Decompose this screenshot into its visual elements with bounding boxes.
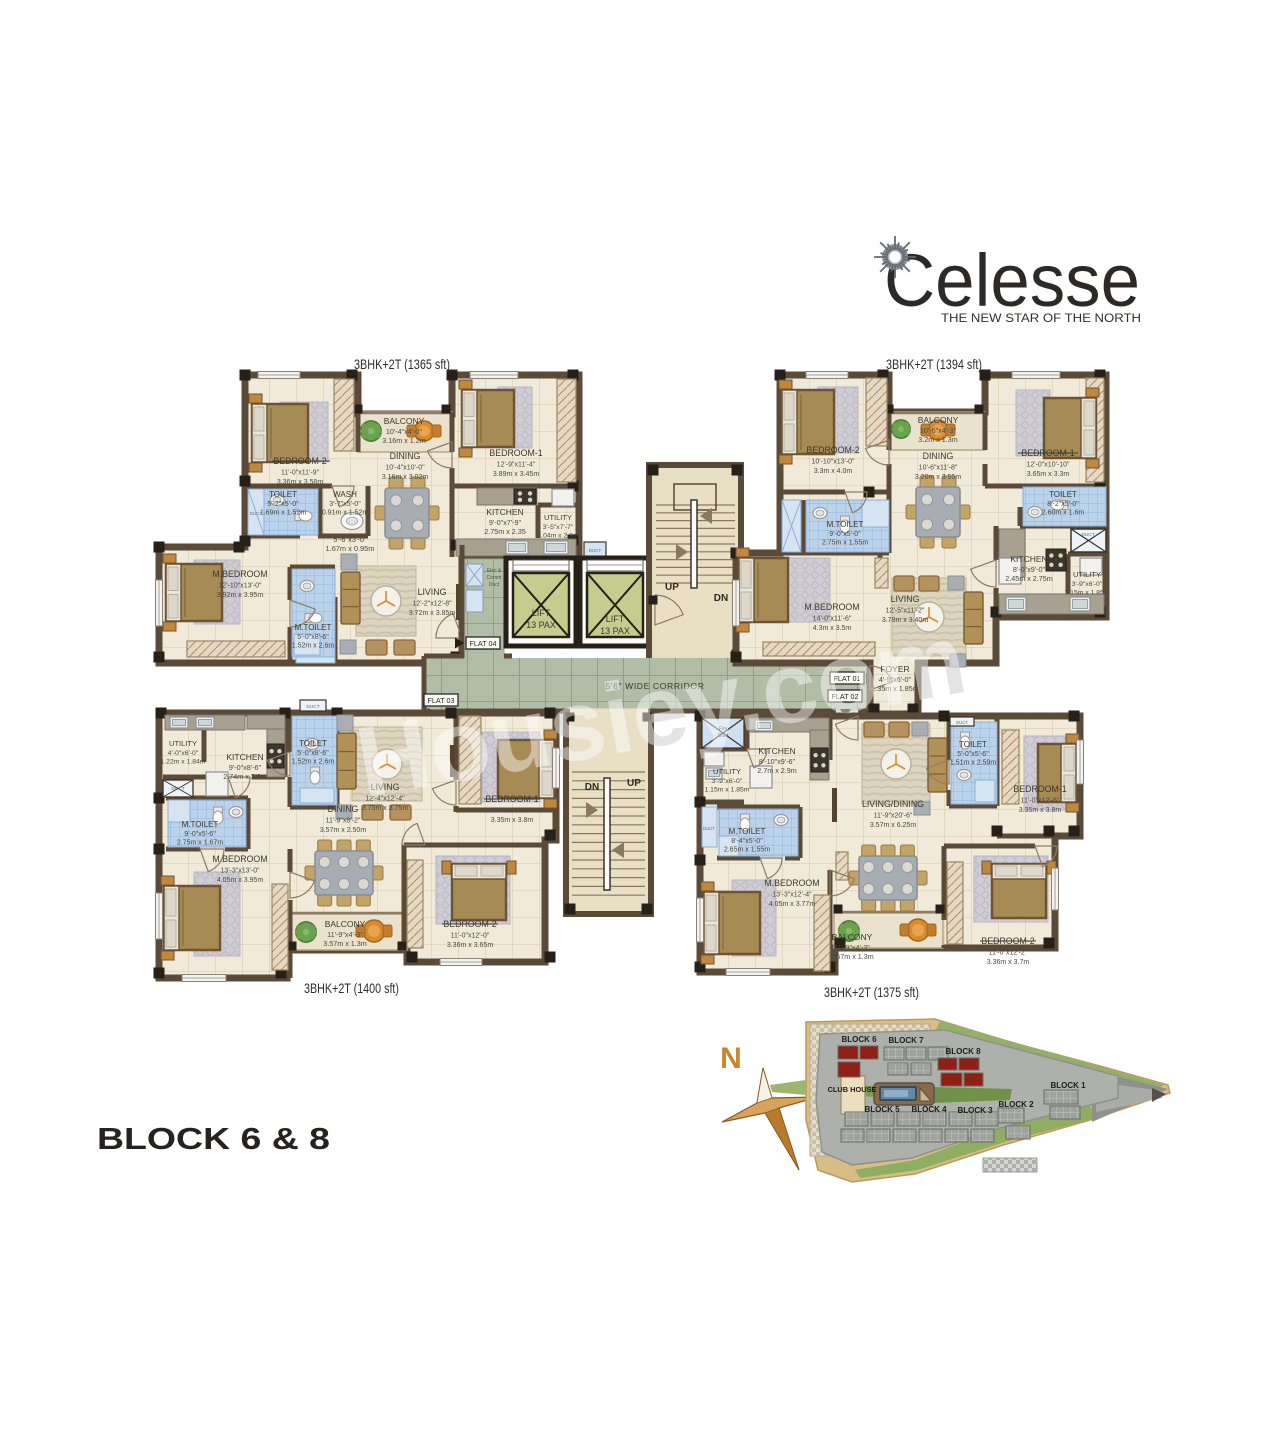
svg-text:11'-0"x12'-6": 11'-0"x12'-6" [493, 808, 532, 815]
svg-text:3.65m x 3.3m: 3.65m x 3.3m [1027, 471, 1070, 478]
svg-text:BALCONY: BALCONY [384, 416, 425, 426]
svg-text:1.15m x 1.85m: 1.15m x 1.85m [1065, 590, 1110, 597]
svg-text:Elec &: Elec & [487, 568, 502, 574]
svg-text:CLUB HOUSE: CLUB HOUSE [828, 1085, 877, 1094]
svg-text:1.22m x 1.84m: 1.22m x 1.84m [161, 759, 206, 766]
svg-text:3'-9"x6'-0": 3'-9"x6'-0" [712, 778, 743, 785]
svg-text:BEDROOM-1: BEDROOM-1 [1013, 784, 1066, 794]
svg-text:Celesse: Celesse [884, 239, 1140, 322]
svg-text:M.TOILET: M.TOILET [729, 827, 766, 836]
svg-text:THE NEW STAR OF THE NORTH: THE NEW STAR OF THE NORTH [941, 311, 1141, 325]
svg-text:5'-0"x5'-6": 5'-0"x5'-6" [957, 751, 989, 758]
svg-text:2.74m x 2.6m: 2.74m x 2.6m [223, 772, 267, 781]
svg-text:8'-10"x9'-6": 8'-10"x9'-6" [759, 757, 796, 766]
svg-text:3BHK+2T (1375 sft): 3BHK+2T (1375 sft) [824, 984, 919, 1000]
svg-text:3.89m x 3.45m: 3.89m x 3.45m [493, 471, 539, 478]
svg-text:Comm: Comm [487, 575, 502, 581]
svg-text:11'-9"x8'-2": 11'-9"x8'-2" [326, 818, 361, 825]
svg-text:10'-4"x10'-0": 10'-4"x10'-0" [385, 465, 425, 472]
svg-text:TOILET: TOILET [959, 740, 987, 749]
svg-text:DUCT: DUCT [1081, 532, 1094, 538]
svg-text:BLOCK 5: BLOCK 5 [864, 1105, 900, 1114]
svg-text:1.52m x 2.6m: 1.52m x 2.6m [292, 759, 335, 766]
svg-text:DN: DN [585, 782, 599, 793]
svg-text:4.05m x 3.77m: 4.05m x 3.77m [769, 901, 815, 908]
svg-text:2.60m x 1.6m: 2.60m x 1.6m [1042, 510, 1085, 517]
svg-text:BEDROOM-1: BEDROOM-1 [489, 448, 542, 458]
svg-text:12'-10"x13'-0": 12'-10"x13'-0" [218, 583, 262, 590]
svg-text:2.75m x 1.67m: 2.75m x 1.67m [177, 840, 223, 847]
svg-text:DINING: DINING [328, 804, 359, 814]
svg-text:0.91m x 1.52m: 0.91m x 1.52m [322, 510, 368, 517]
svg-text:BEDROOM-2: BEDROOM-2 [806, 445, 859, 455]
svg-text:1.15m x 1.85m: 1.15m x 1.85m [705, 787, 750, 794]
svg-text:M.TOILET: M.TOILET [827, 520, 864, 529]
svg-text:3.57m x 2.50m: 3.57m x 2.50m [320, 827, 366, 834]
svg-text:BLOCK 6: BLOCK 6 [841, 1035, 877, 1044]
svg-text:BLOCK 8: BLOCK 8 [945, 1047, 981, 1056]
svg-text:4.05m x 3.95m: 4.05m x 3.95m [217, 877, 263, 884]
svg-text:M.BEDROOM: M.BEDROOM [804, 602, 859, 612]
svg-text:8'-2"x5'-0": 8'-2"x5'-0" [1047, 501, 1079, 508]
svg-text:3.35m x 3.8m: 3.35m x 3.8m [1019, 807, 1062, 814]
svg-text:UTILITY: UTILITY [1073, 570, 1101, 579]
svg-text:13'-3"x13'-0": 13'-3"x13'-0" [220, 868, 260, 875]
svg-text:DINING: DINING [390, 451, 421, 461]
svg-text:1.69m x 1.52m: 1.69m x 1.52m [260, 510, 306, 517]
svg-text:M.BEDROOM: M.BEDROOM [764, 878, 819, 888]
svg-text:1.51m x 2.59m: 1.51m x 2.59m [950, 760, 996, 767]
svg-text:13 PAX: 13 PAX [600, 626, 630, 636]
svg-text:DN: DN [714, 593, 728, 604]
svg-text:3BHK+2T (1365 sft): 3BHK+2T (1365 sft) [354, 356, 450, 372]
svg-text:12'-0"x10'-10": 12'-0"x10'-10" [1026, 462, 1070, 469]
svg-text:11'-9"x20'-6": 11'-9"x20'-6" [874, 813, 913, 820]
svg-text:DUCT: DUCT [171, 786, 184, 792]
svg-text:3'-5"x7'-7": 3'-5"x7'-7" [543, 524, 574, 531]
svg-text:WASH: WASH [333, 490, 357, 499]
svg-text:1.52m x 2.6m: 1.52m x 2.6m [292, 643, 335, 650]
svg-text:M.BEDROOM: M.BEDROOM [212, 854, 267, 864]
svg-text:LIVING: LIVING [891, 594, 920, 604]
svg-text:3.36m x 3.58m: 3.36m x 3.58m [277, 479, 323, 486]
svg-text:BLOCK 4: BLOCK 4 [911, 1105, 947, 1114]
svg-text:9'-0"x8'-6": 9'-0"x8'-6" [229, 763, 262, 772]
svg-text:10'-6"x4'-3": 10'-6"x4'-3" [920, 426, 957, 435]
svg-text:3.3m x 4.0m: 3.3m x 4.0m [814, 468, 853, 475]
svg-text:N: N [720, 1042, 742, 1075]
svg-text:4'-0"x6'-0": 4'-0"x6'-0" [168, 750, 199, 757]
svg-text:3.92m x 3.95m: 3.92m x 3.95m [217, 592, 263, 599]
svg-text:LIFT: LIFT [532, 608, 551, 618]
svg-text:KITCHEN: KITCHEN [1010, 554, 1047, 564]
svg-text:KITCHEN: KITCHEN [226, 752, 263, 762]
svg-text:3.16m x 1.2m: 3.16m x 1.2m [382, 436, 426, 445]
svg-text:1.04m x 2.3m: 1.04m x 2.3m [537, 533, 579, 540]
svg-text:KITCHEN: KITCHEN [486, 507, 523, 517]
svg-text:3.57m x 6.25m: 3.57m x 6.25m [870, 822, 916, 829]
svg-text:Duct: Duct [489, 582, 500, 588]
svg-text:3.16m x 3.02m: 3.16m x 3.02m [382, 474, 428, 481]
svg-text:M.TOILET: M.TOILET [295, 623, 332, 632]
svg-text:BLOCK 7: BLOCK 7 [888, 1036, 924, 1045]
svg-text:3.57m x 1.3m: 3.57m x 1.3m [323, 939, 367, 948]
svg-text:3.72m x 3.85m: 3.72m x 3.85m [409, 610, 455, 617]
svg-text:BLOCK 3: BLOCK 3 [957, 1106, 993, 1115]
svg-text:DUCT: DUCT [956, 720, 968, 725]
svg-text:BALCONY: BALCONY [325, 919, 366, 929]
svg-text:5'-6"x3'-0": 5'-6"x3'-0" [333, 535, 367, 544]
svg-text:2.65m x 1.55m: 2.65m x 1.55m [724, 847, 770, 854]
svg-text:3.57m x 1.3m: 3.57m x 1.3m [830, 952, 874, 961]
svg-text:DUCT: DUCT [703, 826, 715, 831]
svg-text:3.35m x 3.8m: 3.35m x 3.8m [491, 817, 534, 824]
svg-text:5'-0"x8'-6": 5'-0"x8'-6" [297, 634, 329, 641]
svg-text:UTILITY: UTILITY [713, 767, 741, 776]
svg-text:13 PAX: 13 PAX [526, 620, 556, 630]
svg-text:12'-9"x11'-4": 12'-9"x11'-4" [497, 462, 536, 469]
svg-text:3BHK+2T (1400 sft): 3BHK+2T (1400 sft) [304, 980, 399, 996]
svg-text:2.45m x 2.75m: 2.45m x 2.75m [1005, 574, 1053, 583]
svg-text:2.7m x 2.9m: 2.7m x 2.9m [757, 766, 797, 775]
svg-text:8'-4"x5'-0": 8'-4"x5'-0" [731, 838, 763, 845]
svg-text:M.TOILET: M.TOILET [182, 820, 219, 829]
svg-text:BLOCK 6 & 8: BLOCK 6 & 8 [97, 1121, 330, 1156]
svg-text:UP: UP [665, 582, 679, 593]
svg-text:9'-0"x5'-6": 9'-0"x5'-6" [184, 831, 216, 838]
svg-text:9'-0"x7'-9": 9'-0"x7'-9" [489, 518, 522, 527]
svg-text:13'-3"x12'-4": 13'-3"x12'-4" [772, 892, 812, 899]
svg-text:10'-4"x4'-0": 10'-4"x4'-0" [386, 427, 423, 436]
svg-text:LIVING: LIVING [418, 587, 447, 597]
svg-text:5'-0"x8'-6": 5'-0"x8'-6" [297, 750, 329, 757]
svg-text:3BHK+2T (1394 sft): 3BHK+2T (1394 sft) [886, 356, 982, 372]
svg-text:3.20m x 3.55m: 3.20m x 3.55m [915, 474, 961, 481]
svg-text:UTILITY: UTILITY [169, 739, 197, 748]
svg-text:3.36m x 3.7m: 3.36m x 3.7m [987, 959, 1030, 966]
svg-text:1.67m x 0.95m: 1.67m x 0.95m [326, 544, 375, 553]
svg-text:DUCT: DUCT [589, 548, 602, 553]
svg-text:3'-9"x6'-0": 3'-9"x6'-0" [1072, 581, 1103, 588]
svg-text:8'-0"x9'-0": 8'-0"x9'-0" [1013, 565, 1046, 574]
svg-text:BALCONY: BALCONY [918, 415, 959, 425]
svg-text:11'-9"x4'-3": 11'-9"x4'-3" [834, 943, 870, 952]
svg-text:11'-0"x12'-2": 11'-0"x12'-2" [989, 950, 1028, 957]
svg-text:3.36m x 3.65m: 3.36m x 3.65m [447, 942, 493, 949]
svg-text:FLAT 04: FLAT 04 [470, 639, 497, 648]
svg-text:TOILET: TOILET [1049, 490, 1077, 499]
svg-text:BLOCK 1: BLOCK 1 [1050, 1081, 1086, 1090]
svg-text:10'-6"x11'-8": 10'-6"x11'-8" [919, 465, 958, 472]
svg-text:10'-10"x13'-0": 10'-10"x13'-0" [811, 459, 855, 466]
svg-text:BLOCK 2: BLOCK 2 [998, 1100, 1034, 1109]
svg-text:DINING: DINING [923, 451, 954, 461]
svg-text:UTILITY: UTILITY [544, 513, 572, 522]
svg-text:2.75m x 1.55m: 2.75m x 1.55m [822, 540, 868, 547]
svg-text:LIVING/DINING: LIVING/DINING [862, 799, 924, 809]
svg-text:5'-7"x5'-0": 5'-7"x5'-0" [267, 501, 299, 508]
svg-text:11'-0"x12'-6": 11'-0"x12'-6" [1021, 798, 1060, 805]
svg-text:11'-9"x4'-3": 11'-9"x4'-3" [327, 930, 363, 939]
svg-text:3.2m x 1.3m: 3.2m x 1.3m [918, 435, 958, 444]
svg-text:3'-7"x5'-0": 3'-7"x5'-0" [329, 501, 361, 508]
svg-text:11'-0"x12'-0": 11'-0"x12'-0" [451, 933, 490, 940]
svg-text:TOILET: TOILET [269, 490, 297, 499]
svg-text:TOILET: TOILET [299, 739, 327, 748]
svg-text:11'-0"x11'-9": 11'-0"x11'-9" [281, 470, 320, 477]
svg-text:2.75m x 2.35: 2.75m x 2.35 [484, 527, 526, 536]
svg-text:BALCONY: BALCONY [832, 932, 873, 942]
svg-text:UP: UP [627, 778, 641, 789]
svg-text:DUCT: DUCT [306, 704, 319, 710]
svg-text:LIFT: LIFT [606, 614, 625, 624]
svg-text:9'-0"x5'-0": 9'-0"x5'-0" [829, 531, 861, 538]
svg-text:12'-2"x12'-8": 12'-2"x12'-8" [412, 601, 452, 608]
svg-text:M.BEDROOM: M.BEDROOM [212, 569, 267, 579]
